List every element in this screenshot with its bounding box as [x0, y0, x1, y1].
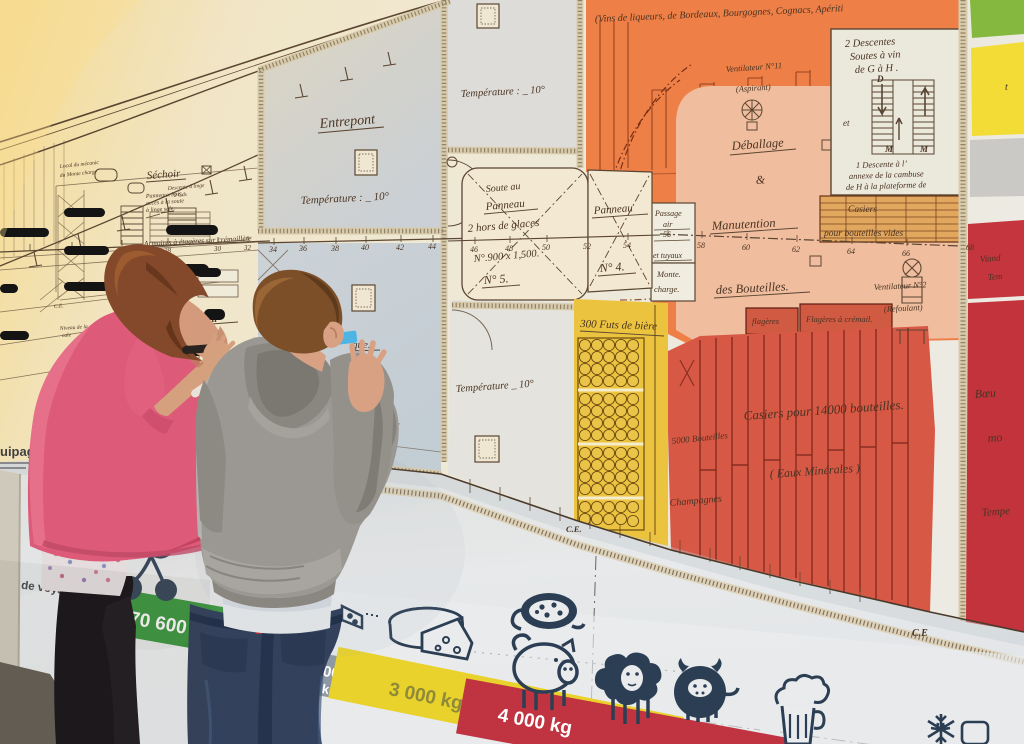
svg-text:flagères: flagères [752, 316, 780, 326]
svg-text:et: et [843, 118, 850, 128]
svg-text:charge.: charge. [654, 284, 679, 294]
svg-text:60: 60 [742, 243, 750, 252]
svg-text:D: D [876, 74, 884, 84]
svg-text:t: t [1005, 82, 1008, 93]
svg-text:40: 40 [361, 243, 369, 252]
svg-text:42: 42 [396, 243, 404, 252]
svg-text:Tem: Tem [987, 271, 1003, 282]
svg-text:2 Gds: 2 Gds [174, 192, 187, 199]
svg-text:pour bouteilles vides: pour bouteilles vides [823, 229, 903, 239]
svg-text:66: 66 [902, 249, 910, 258]
svg-text:64: 64 [847, 247, 855, 256]
svg-text:&: & [755, 172, 766, 187]
svg-text:Viand: Viand [979, 253, 1001, 264]
svg-text:M: M [884, 144, 894, 154]
svg-text:cale: cale [62, 332, 72, 339]
svg-text:C.E: C.E [912, 628, 928, 639]
svg-text:50: 50 [542, 243, 550, 252]
svg-text:Tempe: Tempe [981, 505, 1010, 519]
svg-text:air: air [663, 220, 673, 229]
svg-text:36: 36 [298, 244, 307, 253]
svg-text:44: 44 [428, 242, 436, 251]
svg-text:38: 38 [330, 244, 339, 253]
svg-text:mo: mo [987, 430, 1003, 445]
svg-text:M: M [919, 144, 929, 154]
svg-text:58: 58 [697, 241, 705, 250]
svg-text:Casiers: Casiers [848, 205, 877, 215]
svg-text:Bœu: Bœu [974, 386, 996, 401]
svg-text:68: 68 [966, 243, 974, 252]
svg-text:C.E.: C.E. [566, 524, 582, 534]
svg-text:34: 34 [268, 245, 277, 254]
svg-text:52: 52 [583, 242, 591, 251]
svg-text:C.E.: C.E. [54, 303, 64, 310]
svg-text:Monte.: Monte. [656, 269, 681, 279]
svg-text:46: 46 [470, 245, 478, 254]
svg-text:62: 62 [792, 245, 800, 254]
svg-text:32: 32 [243, 244, 252, 252]
svg-text:30: 30 [213, 245, 222, 253]
svg-text:(Refoulant): (Refoulant) [884, 302, 923, 314]
svg-text:54: 54 [623, 241, 631, 250]
svg-text:1 Descente à l’: 1 Descente à l’ [856, 158, 908, 170]
svg-text:48: 48 [505, 244, 513, 253]
svg-text:N° 5.: N° 5. [482, 271, 509, 287]
svg-text:et tuyaux: et tuyaux [653, 251, 683, 260]
svg-text:N° 4.: N° 4. [598, 259, 625, 275]
svg-text:Passage: Passage [654, 209, 682, 218]
svg-text:Flagères à crémail.: Flagères à crémail. [805, 314, 873, 324]
